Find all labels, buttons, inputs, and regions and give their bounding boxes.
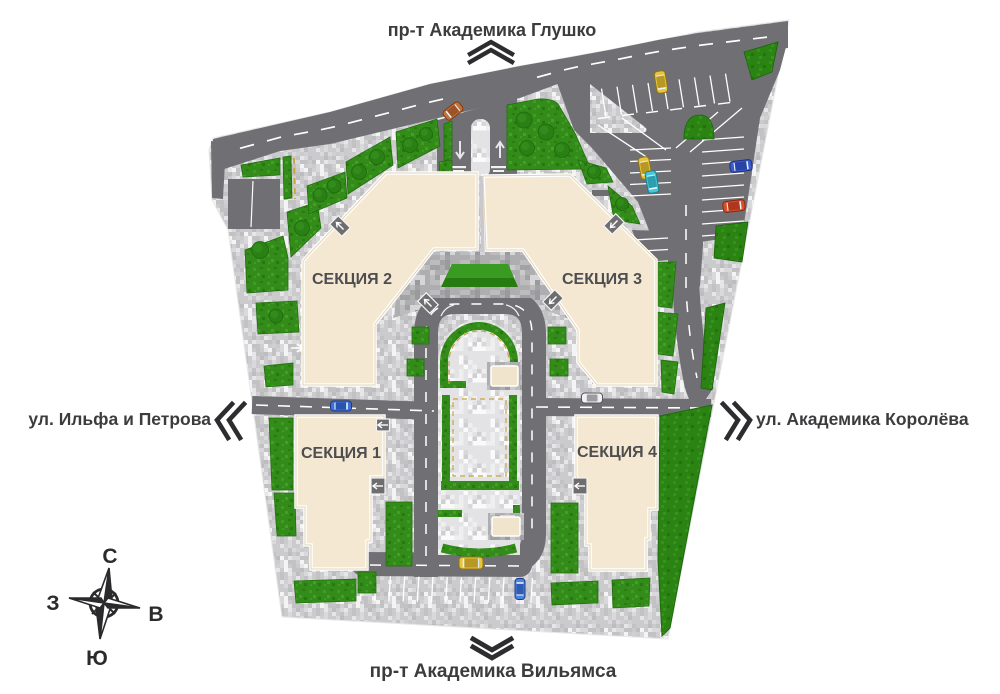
svg-text:ул. Ильфа и Петрова: ул. Ильфа и Петрова xyxy=(28,409,211,429)
svg-text:С: С xyxy=(102,545,117,568)
svg-text:СЕКЦИЯ 3: СЕКЦИЯ 3 xyxy=(562,271,642,288)
svg-text:пр-т Академика Вильямса: пр-т Академика Вильямса xyxy=(370,661,617,682)
svg-text:ул. Академика Королёва: ул. Академика Королёва xyxy=(756,409,969,429)
svg-text:СЕКЦИЯ 2: СЕКЦИЯ 2 xyxy=(312,271,392,288)
svg-text:Ю: Ю xyxy=(86,647,108,670)
svg-text:СЕКЦИЯ 1: СЕКЦИЯ 1 xyxy=(301,445,381,462)
svg-text:пр-т Академика Глушко: пр-т Академика Глушко xyxy=(388,20,597,40)
svg-text:В: В xyxy=(148,603,163,626)
svg-text:З: З xyxy=(46,592,59,615)
svg-text:СЕКЦИЯ 4: СЕКЦИЯ 4 xyxy=(577,444,657,461)
